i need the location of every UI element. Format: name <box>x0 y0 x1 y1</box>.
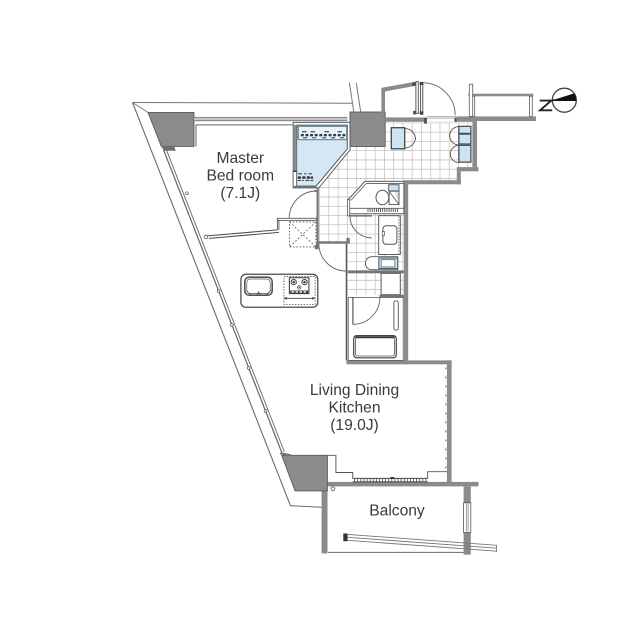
svg-text:Master: Master <box>216 150 264 167</box>
svg-text:Bed room: Bed room <box>206 168 274 185</box>
svg-text:Kitchen: Kitchen <box>328 400 380 417</box>
svg-text:Balcony: Balcony <box>369 503 425 520</box>
svg-text:(7.1J): (7.1J) <box>220 185 260 202</box>
svg-text:(19.0J): (19.0J) <box>330 417 379 434</box>
svg-text:Living Dining: Living Dining <box>310 382 399 399</box>
